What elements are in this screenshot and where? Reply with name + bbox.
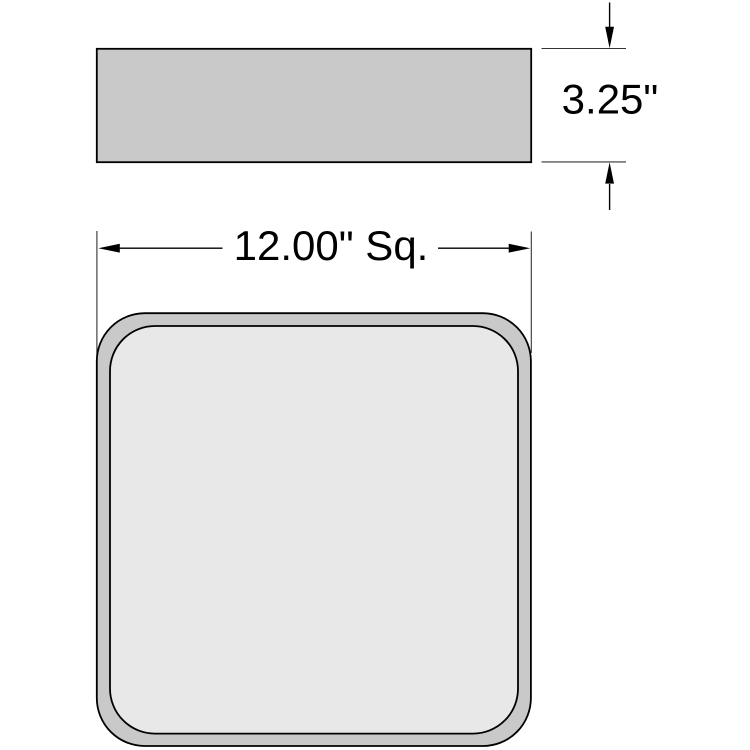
svg-text:12.00" Sq.: 12.00" Sq. xyxy=(234,222,429,269)
svg-text:3.25": 3.25" xyxy=(562,76,659,123)
